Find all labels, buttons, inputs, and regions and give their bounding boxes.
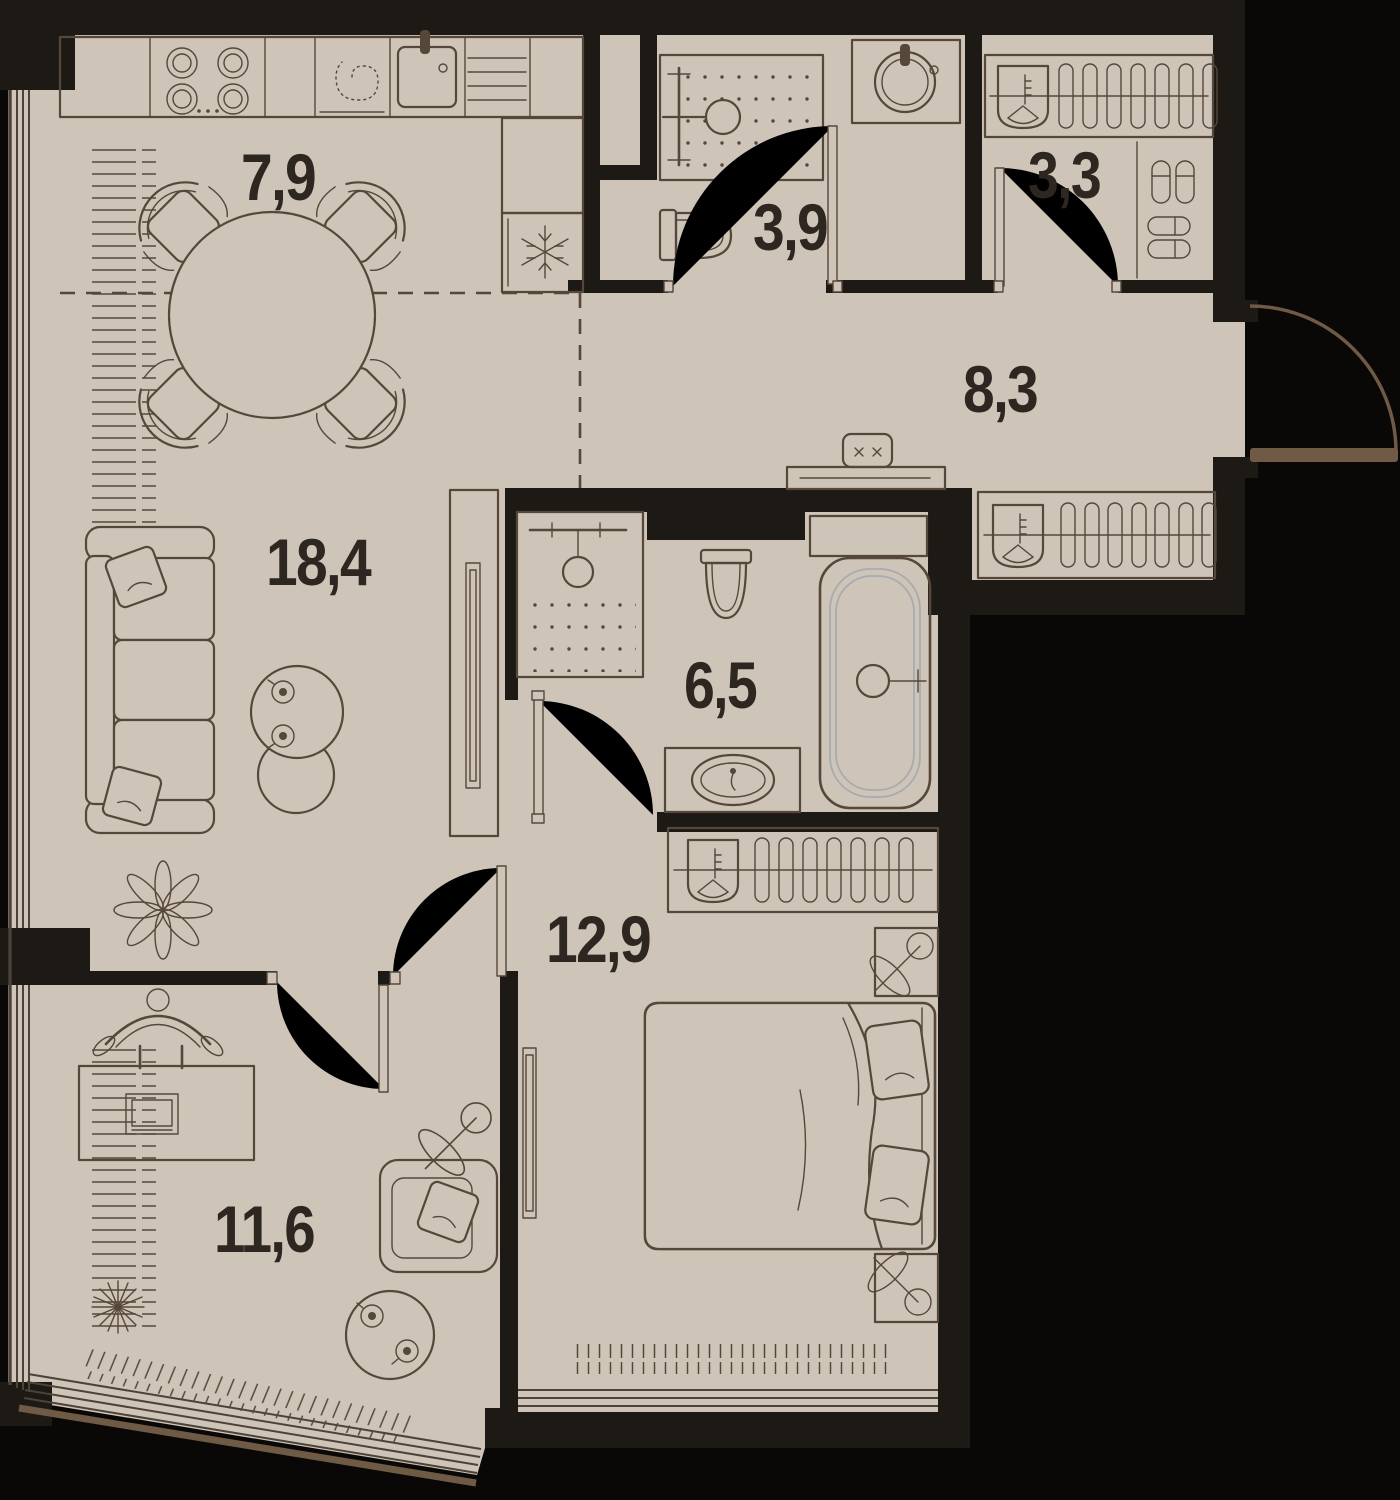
sofa-icon — [86, 527, 214, 833]
room-area-label-kitchen: 7,9 — [241, 140, 315, 214]
bed-icon — [645, 1003, 935, 1249]
room-area-label-bathroom-small: 3,9 — [753, 190, 827, 264]
room-area-label-bedroom: 12,9 — [546, 902, 650, 976]
side-table-icon — [346, 1291, 434, 1379]
coffee-tables-icon — [251, 666, 343, 813]
room-area-label-living: 18,4 — [266, 525, 372, 599]
room-area-label-hallway: 8,3 — [963, 352, 1037, 426]
dandelion-plant-icon — [92, 1281, 144, 1333]
floor-plan-canvas: 7,9 3,9 — [0, 0, 1400, 1500]
room-area-label-wardrobe: 3,3 — [1028, 138, 1100, 212]
room-area-label-bathroom-main: 6,5 — [684, 648, 756, 722]
floor-plan-page: 7,9 3,9 — [0, 0, 1400, 1500]
room-area-label-study: 11,6 — [214, 1192, 314, 1266]
armchair-icon — [380, 1160, 497, 1272]
